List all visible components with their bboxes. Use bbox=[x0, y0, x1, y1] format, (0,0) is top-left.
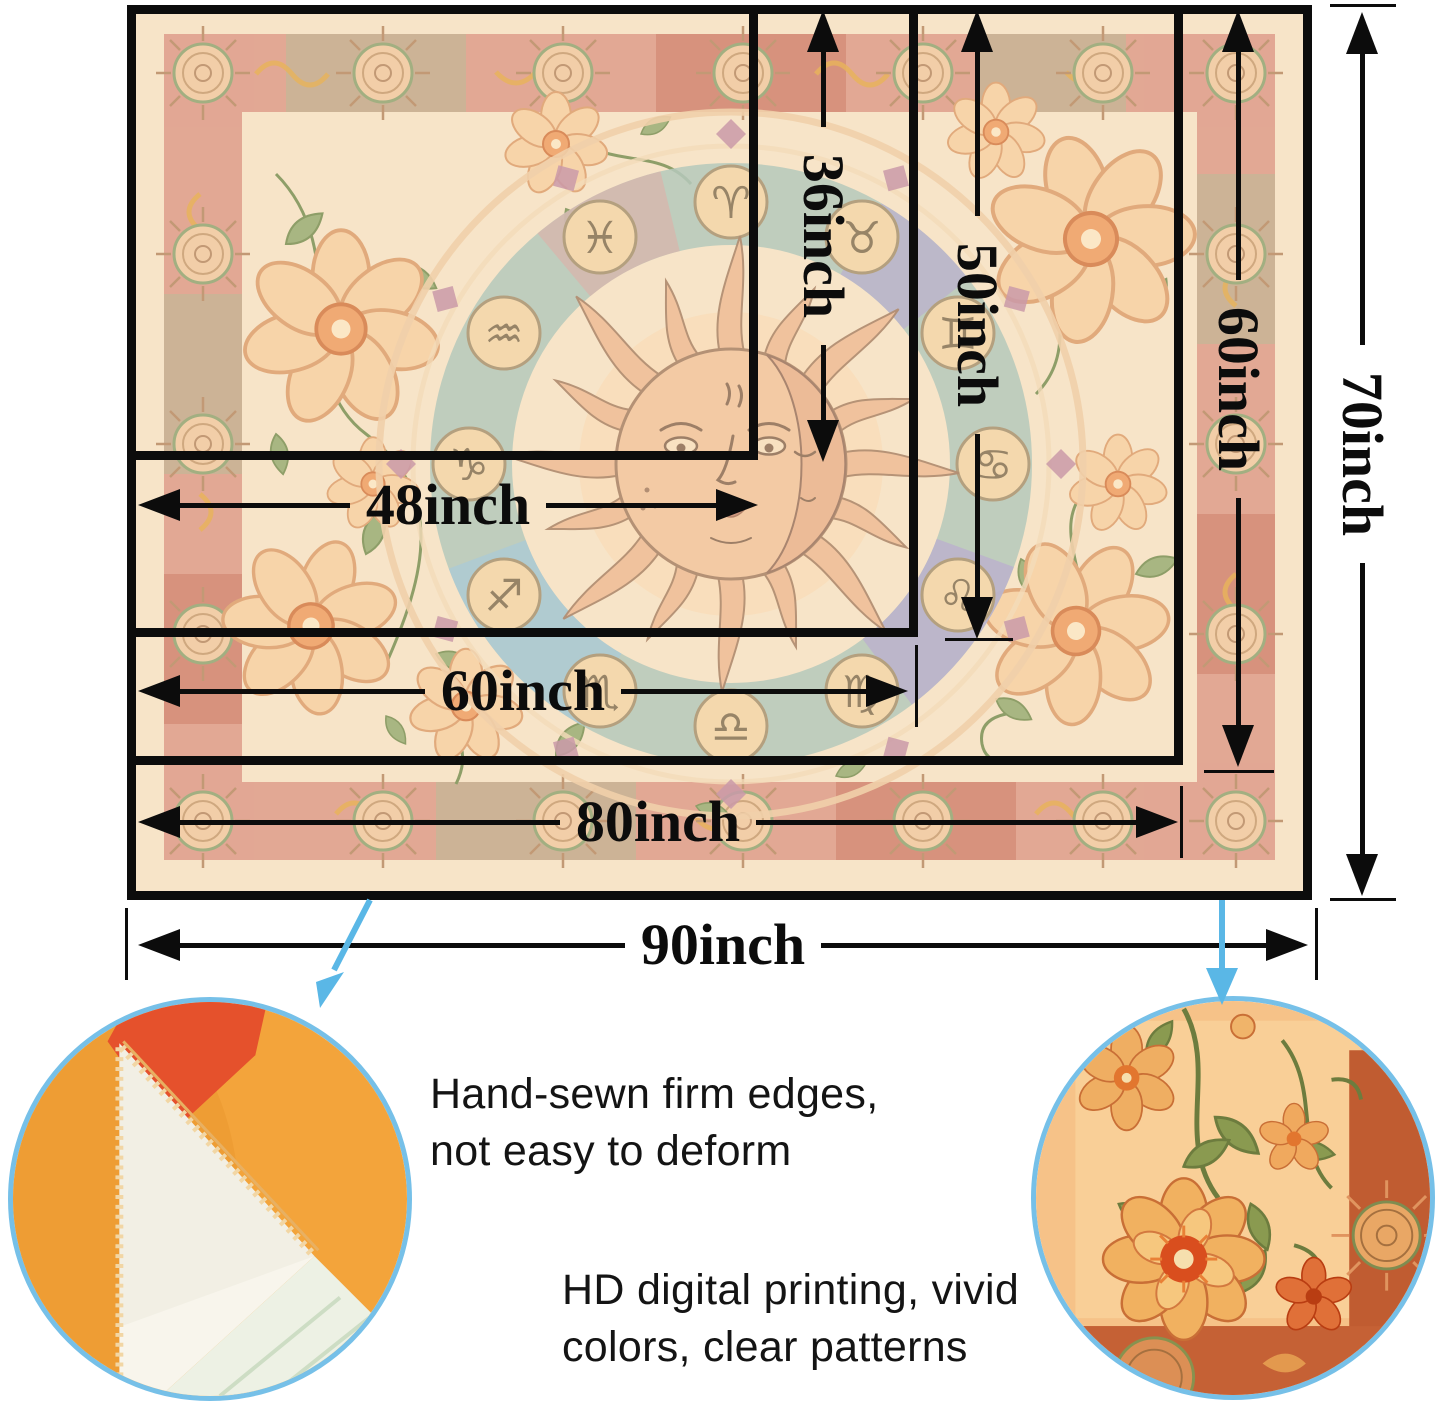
width-label-60inch: 60inch bbox=[425, 662, 621, 720]
arrowhead-right-icon bbox=[866, 675, 908, 707]
width-dimension-60inch: 60inch bbox=[138, 661, 908, 721]
pattern-closeup-image bbox=[1036, 1001, 1430, 1395]
dimension-line bbox=[756, 820, 1136, 825]
extension-line bbox=[125, 908, 128, 980]
dimension-line bbox=[621, 689, 866, 694]
height-dimension-36inch: 36inch bbox=[791, 10, 855, 462]
height-dimension-50inch: 50inch bbox=[945, 10, 1009, 639]
height-label-70inch: 70inch bbox=[1333, 372, 1391, 536]
extension-line bbox=[1180, 786, 1183, 858]
arrowhead-up-icon bbox=[1346, 12, 1378, 54]
feature-text-sewn-edges: Hand-sewn firm edges, not easy to deform bbox=[430, 1066, 878, 1180]
fabric-edge-image bbox=[13, 1002, 407, 1396]
width-label-90inch: 90inch bbox=[625, 916, 821, 974]
arrowhead-left-icon bbox=[138, 675, 180, 707]
feature-line: Hand-sewn firm edges, bbox=[430, 1066, 878, 1123]
height-label-36inch: 36inch bbox=[794, 154, 852, 318]
arrowhead-down-icon bbox=[1222, 725, 1254, 767]
dimension-line bbox=[180, 820, 560, 825]
arrowhead-down-icon bbox=[1346, 854, 1378, 896]
height-label-60inch: 60inch bbox=[1209, 306, 1267, 470]
dimension-line bbox=[821, 345, 826, 420]
size-rectangle-48x36 bbox=[127, 5, 758, 460]
arrowhead-up-icon bbox=[807, 10, 839, 52]
arrowhead-down-icon bbox=[807, 420, 839, 462]
dimension-line bbox=[821, 52, 826, 127]
feature-text-hd-printing: HD digital printing, vivid colors, clear… bbox=[562, 1262, 1019, 1376]
width-label-80inch: 80inch bbox=[560, 793, 756, 851]
height-dimension-70inch: 70inch bbox=[1330, 12, 1394, 896]
dimension-line bbox=[1236, 498, 1241, 726]
extension-tick bbox=[1204, 770, 1274, 773]
dimension-line bbox=[1360, 54, 1365, 345]
dimension-line bbox=[975, 52, 980, 216]
feature-line: HD digital printing, vivid bbox=[562, 1262, 1019, 1319]
extension-line bbox=[915, 645, 918, 727]
dimension-line bbox=[1360, 563, 1365, 854]
dimension-line bbox=[180, 503, 350, 508]
width-label-48inch: 48inch bbox=[350, 476, 546, 534]
extension-tick bbox=[1330, 898, 1396, 901]
extension-line bbox=[1315, 908, 1318, 980]
dimension-line bbox=[821, 943, 1266, 948]
height-label-50inch: 50inch bbox=[948, 242, 1006, 406]
width-dimension-48inch: 48inch bbox=[138, 475, 758, 535]
tapestry-size-chart: ♈ ♉ ♊ ♋ ♌ ♍ ♎ ♏ ♐ ♑ ♒ ♓ bbox=[0, 0, 1445, 1413]
dimension-line bbox=[180, 943, 625, 948]
width-dimension-90inch: 90inch bbox=[138, 915, 1308, 975]
arrowhead-left-icon bbox=[138, 806, 180, 838]
large-flower bbox=[1103, 1178, 1265, 1340]
arrowhead-right-icon bbox=[1266, 929, 1308, 961]
height-dimension-60inch: 60inch bbox=[1206, 10, 1270, 767]
fabric-edge-closeup bbox=[8, 997, 412, 1401]
arrowhead-down-icon bbox=[961, 597, 993, 639]
arrowhead-left-icon bbox=[138, 489, 180, 521]
arrowhead-left-icon bbox=[138, 929, 180, 961]
width-dimension-80inch: 80inch bbox=[138, 792, 1178, 852]
feature-line: not easy to deform bbox=[430, 1123, 878, 1180]
arrowhead-up-icon bbox=[1222, 10, 1254, 52]
arrowhead-right-icon bbox=[1136, 806, 1178, 838]
dimension-line bbox=[546, 503, 716, 508]
pattern-closeup bbox=[1031, 996, 1435, 1400]
dimension-line bbox=[1236, 52, 1241, 280]
tapestry-image: ♈ ♉ ♊ ♋ ♌ ♍ ♎ ♏ ♐ ♑ ♒ ♓ bbox=[127, 5, 1312, 900]
dimension-line bbox=[975, 434, 980, 598]
extension-tick bbox=[1330, 4, 1396, 7]
arrowhead-up-icon bbox=[961, 10, 993, 52]
arrowhead-right-icon bbox=[716, 489, 758, 521]
feature-line: colors, clear patterns bbox=[562, 1319, 1019, 1376]
dimension-line bbox=[180, 689, 425, 694]
